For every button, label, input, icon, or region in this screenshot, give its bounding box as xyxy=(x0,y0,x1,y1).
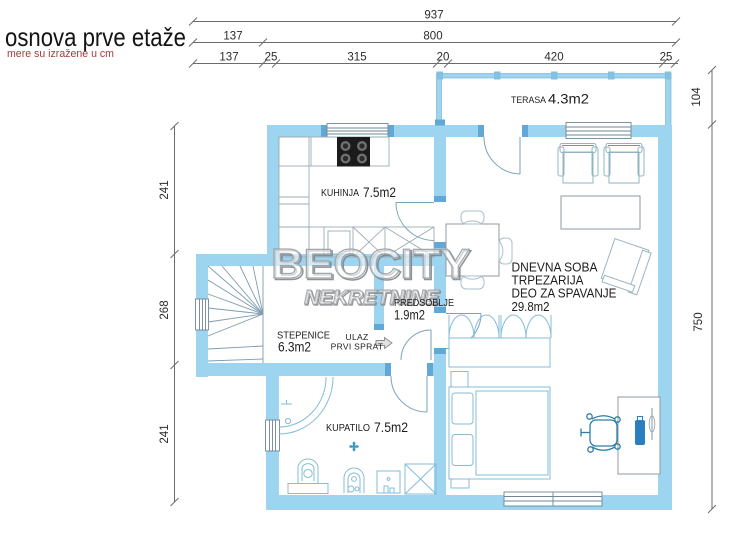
svg-text:KUHINJA: KUHINJA xyxy=(321,188,359,199)
svg-text:PRVI SPRAT: PRVI SPRAT xyxy=(331,342,384,352)
svg-text:BEOCITY: BEOCITY xyxy=(271,240,470,287)
svg-text:mere su izražene u cm: mere su izražene u cm xyxy=(7,48,114,60)
svg-text:137: 137 xyxy=(219,52,238,64)
svg-text:800: 800 xyxy=(423,31,442,43)
svg-text:TERASA: TERASA xyxy=(511,95,547,106)
svg-text:268: 268 xyxy=(159,300,171,319)
svg-text:DEO ZA SPAVANJE: DEO ZA SPAVANJE xyxy=(512,287,617,301)
svg-text:25: 25 xyxy=(660,52,673,64)
svg-text:KUPATILO: KUPATILO xyxy=(326,422,370,434)
svg-text:20: 20 xyxy=(437,52,450,64)
svg-text:29.8m2: 29.8m2 xyxy=(512,300,550,314)
svg-text:1.9m2: 1.9m2 xyxy=(394,308,425,323)
svg-text:241: 241 xyxy=(159,180,171,199)
svg-text:937: 937 xyxy=(424,10,443,22)
svg-text:315: 315 xyxy=(347,52,366,64)
svg-text:7.5m2: 7.5m2 xyxy=(363,185,396,200)
svg-text:7.5m2: 7.5m2 xyxy=(374,419,408,435)
svg-text:137: 137 xyxy=(223,31,242,43)
svg-text:420: 420 xyxy=(544,52,563,64)
svg-text:DNEVNA SOBA: DNEVNA SOBA xyxy=(512,261,599,275)
svg-text:750: 750 xyxy=(693,312,705,331)
svg-text:ULAZ: ULAZ xyxy=(346,332,369,342)
svg-text:4.3m2: 4.3m2 xyxy=(548,91,589,107)
svg-text:104: 104 xyxy=(691,87,703,107)
svg-text:TRPEZARIJA: TRPEZARIJA xyxy=(512,274,585,288)
svg-text:6.3m2: 6.3m2 xyxy=(278,339,311,355)
svg-text:25: 25 xyxy=(265,52,278,64)
svg-text:241: 241 xyxy=(159,424,171,443)
